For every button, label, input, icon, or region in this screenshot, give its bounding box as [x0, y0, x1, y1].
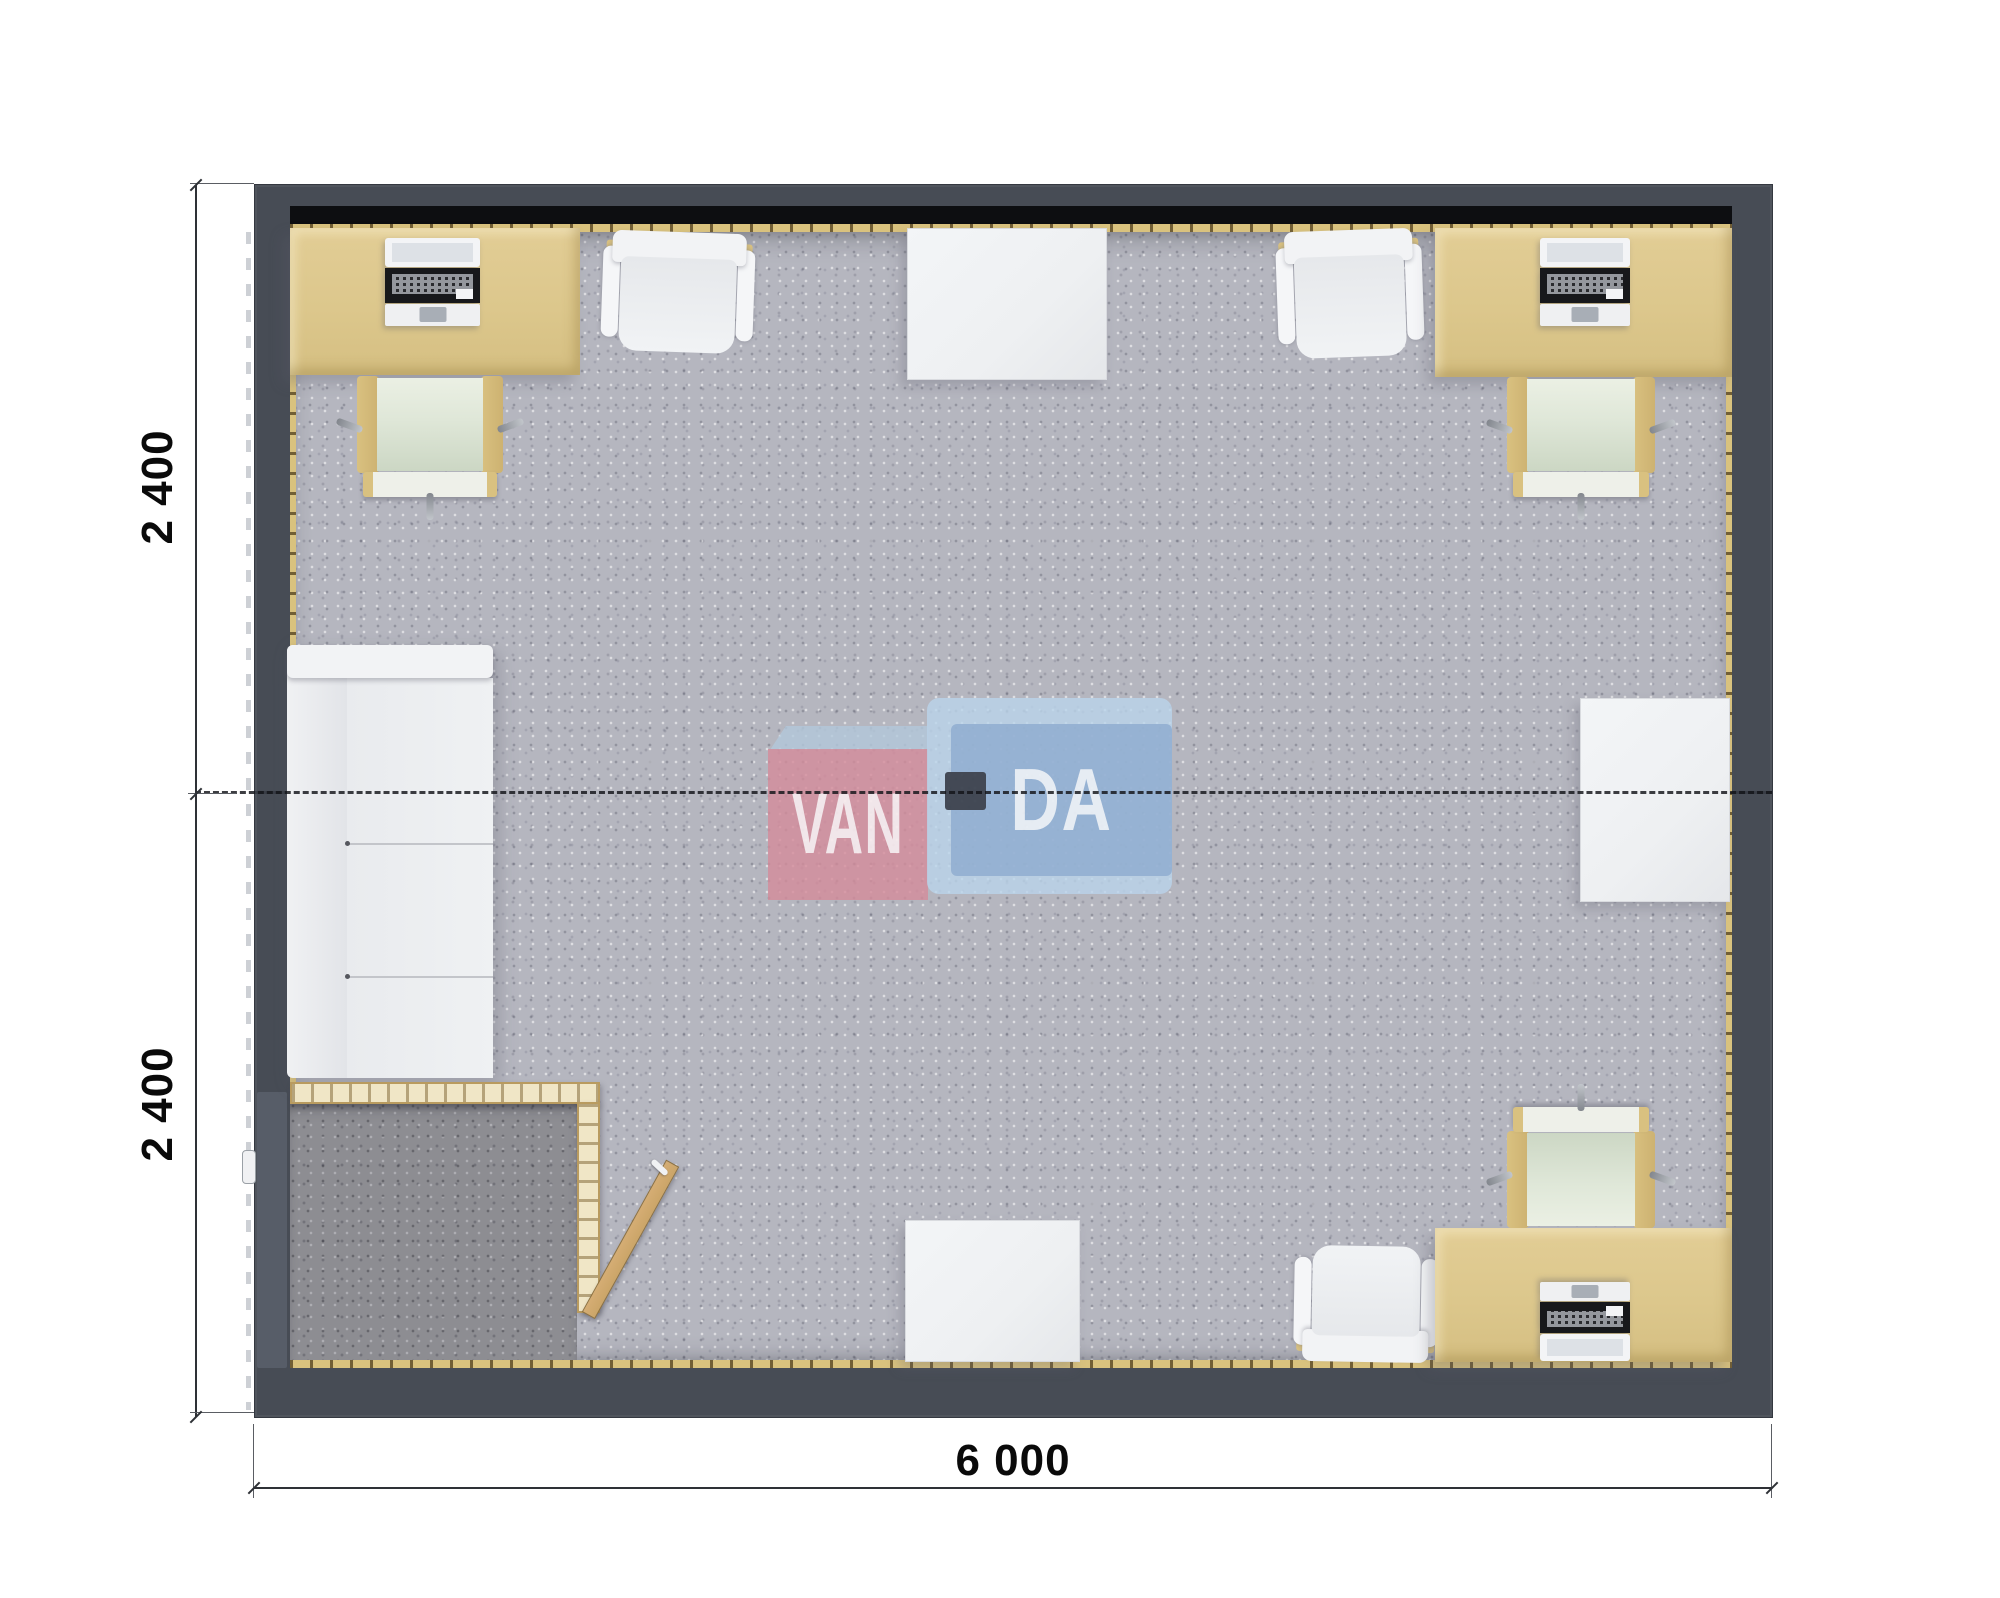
- laptop-keyboard: [385, 268, 480, 303]
- desk-top-right: [1435, 228, 1732, 377]
- laptop-palmrest: [385, 304, 480, 326]
- desk-chair-top-right: [1507, 377, 1655, 497]
- sofa-backrest: [287, 645, 347, 1078]
- dimension-label-left-bottom: 2 400: [133, 1046, 183, 1161]
- table-bottom-center: [905, 1220, 1080, 1362]
- watermark-text-da: DA: [975, 724, 1147, 876]
- laptop-bottom-right: [1540, 1282, 1630, 1361]
- watermark-text-van: VAN: [798, 749, 897, 900]
- laptop-top-right: [1540, 238, 1630, 326]
- watermark-pink-box: VAN: [768, 749, 928, 900]
- module-joint-dashed-line: [195, 791, 1772, 794]
- desk-bottom-right: [1435, 1228, 1732, 1362]
- dimension-label-bottom: 6 000: [955, 1436, 1070, 1486]
- dimension-label-left-top: 2 400: [133, 429, 183, 544]
- vestibule-wall-top: [290, 1082, 600, 1104]
- laptop-screen: [385, 238, 480, 267]
- left-exterior-dashed-strip: [246, 232, 251, 1410]
- entry-door-panel-left-wall: [257, 1092, 287, 1368]
- office-chair-bottom: [1299, 1242, 1433, 1363]
- vestibule-floor: [290, 1103, 577, 1360]
- desk-chair-bottom-right: [1507, 1107, 1655, 1228]
- entry-door-handle-exterior: [242, 1150, 256, 1184]
- caster-wheel: [427, 493, 434, 520]
- vestibule-wall-right: [577, 1102, 600, 1313]
- extension-line-left-top: [190, 183, 254, 184]
- dimension-line-left: [195, 185, 197, 1417]
- sofa-left: [287, 645, 497, 1078]
- office-chair-top-left: [606, 230, 750, 358]
- dimension-line-bottom: [254, 1487, 1772, 1489]
- sofa-armrest: [287, 645, 493, 678]
- laptop-top-left: [385, 238, 480, 326]
- table-top-center: [907, 228, 1107, 380]
- office-chair-top-right: [1281, 228, 1419, 363]
- desk-top-left: [290, 228, 580, 375]
- desk-chair-top-left: [357, 376, 503, 497]
- top-wall-inner-line: [290, 206, 1732, 224]
- watermark-pink-top-face: [770, 726, 928, 750]
- side-table-right: [1580, 698, 1730, 902]
- floor-plan-canvas: VAN DA 2 400 2 400 6 000: [0, 0, 2000, 1598]
- sofa-seats: [347, 678, 493, 1078]
- laptop-touchpad: [419, 307, 446, 322]
